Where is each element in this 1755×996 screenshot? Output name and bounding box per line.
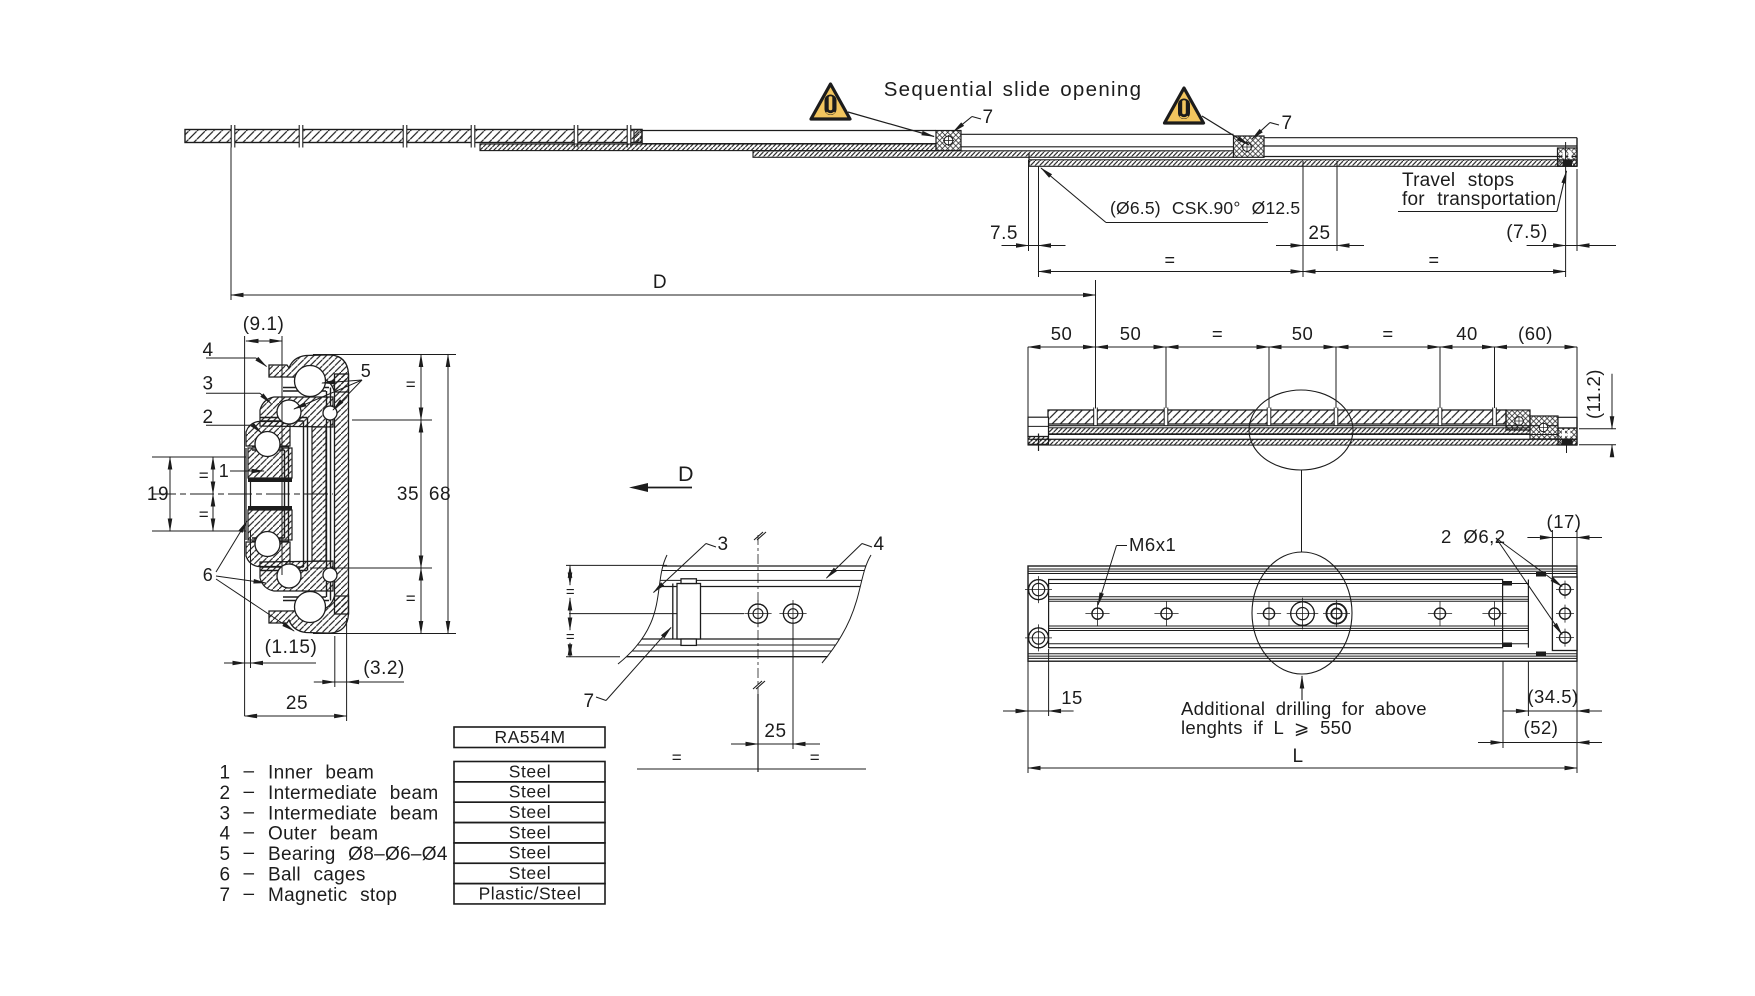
svg-text:D: D [678,462,694,486]
svg-text:=: = [566,584,575,601]
svg-text:Outer beam: Outer beam [268,824,378,845]
svg-text:–: – [243,761,254,782]
svg-text:D: D [653,272,667,293]
svg-text:7: 7 [982,107,993,128]
svg-text:–: – [243,843,254,864]
svg-text:–: – [243,822,254,843]
svg-text:3: 3 [717,534,728,555]
svg-text:(7.5): (7.5) [1506,222,1548,243]
svg-text:1: 1 [219,461,230,481]
svg-text:25: 25 [286,693,308,714]
svg-text:2: 2 [219,783,230,804]
svg-text:15: 15 [1061,687,1083,708]
svg-text:L: L [1292,746,1303,767]
svg-text:Sequential slide opening: Sequential slide opening [884,78,1143,101]
svg-text:=: = [1164,250,1175,270]
svg-text:(11.2): (11.2) [1583,369,1604,419]
svg-text:50: 50 [1292,323,1314,344]
svg-text:=: = [810,748,820,767]
svg-text:7: 7 [219,885,230,906]
svg-text:=: = [199,505,209,524]
svg-text:Intermediate beam: Intermediate beam [268,783,439,804]
svg-text:(17): (17) [1547,511,1582,532]
svg-text:Plastic/Steel: Plastic/Steel [479,883,582,903]
svg-text:6: 6 [219,865,230,886]
svg-text:(60): (60) [1518,323,1553,344]
svg-text:Additional drilling for above: Additional drilling for above [1181,698,1427,719]
svg-text:=: = [1382,323,1393,344]
svg-text:Inner beam: Inner beam [268,763,374,784]
svg-text:50: 50 [1120,323,1142,344]
svg-text:(9.1): (9.1) [243,314,285,335]
svg-text:–: – [243,883,254,904]
svg-text:7.5: 7.5 [990,223,1018,244]
svg-text:7: 7 [583,691,594,712]
svg-text:=: = [1428,250,1439,270]
svg-text:–: – [243,802,254,823]
svg-text:4: 4 [873,534,884,555]
svg-text:5: 5 [219,844,230,865]
svg-text:Steel: Steel [509,822,551,842]
svg-text:(52): (52) [1524,717,1559,738]
svg-text:=: = [406,375,416,394]
svg-text:=: = [199,466,209,485]
svg-text:40: 40 [1456,323,1478,344]
svg-text:50: 50 [1051,323,1073,344]
svg-text:=: = [1212,323,1223,344]
svg-text:Intermediate beam: Intermediate beam [268,803,439,824]
svg-text:25: 25 [1308,223,1330,244]
svg-text:(3.2): (3.2) [363,658,405,679]
svg-text:–: – [243,781,254,802]
svg-text:35: 35 [397,484,419,505]
svg-text:2 Ø6,2: 2 Ø6,2 [1441,526,1506,547]
svg-text:3: 3 [202,374,213,395]
svg-text:–: – [243,863,254,884]
svg-text:19: 19 [147,484,169,505]
svg-text:25: 25 [764,721,786,742]
svg-text:Steel: Steel [509,843,551,863]
svg-text:Ball cages: Ball cages [268,865,366,886]
svg-text:Steel: Steel [509,761,551,781]
svg-text:(1.15): (1.15) [265,637,318,658]
svg-text:Bearing Ø8–Ø6–Ø4: Bearing Ø8–Ø6–Ø4 [268,844,448,865]
svg-text:(Ø6.5) CSK.90° Ø12.5: (Ø6.5) CSK.90° Ø12.5 [1110,198,1300,218]
svg-text:=: = [566,629,575,646]
svg-text:Magnetic stop: Magnetic stop [268,885,397,906]
svg-text:M6x1: M6x1 [1129,534,1176,555]
svg-text:(34.5): (34.5) [1527,686,1578,707]
svg-text:lenghts if L ⩾ 550: lenghts if L ⩾ 550 [1181,717,1352,738]
svg-text:for transportation: for transportation [1402,189,1556,210]
svg-text:5: 5 [361,361,372,381]
svg-text:RA554M: RA554M [494,727,565,747]
svg-text:6: 6 [203,565,214,585]
svg-text:=: = [406,589,416,608]
svg-text:2: 2 [202,407,213,428]
svg-text:68: 68 [429,484,451,505]
svg-text:7: 7 [1281,113,1292,134]
svg-text:Steel: Steel [509,802,551,822]
svg-text:4: 4 [219,824,230,845]
svg-text:Steel: Steel [509,863,551,883]
svg-text:3: 3 [219,803,230,824]
svg-text:=: = [672,748,682,767]
svg-text:4: 4 [202,340,213,361]
svg-text:1: 1 [219,763,230,784]
svg-text:Steel: Steel [509,782,551,802]
svg-text:Travel stops: Travel stops [1402,170,1514,191]
